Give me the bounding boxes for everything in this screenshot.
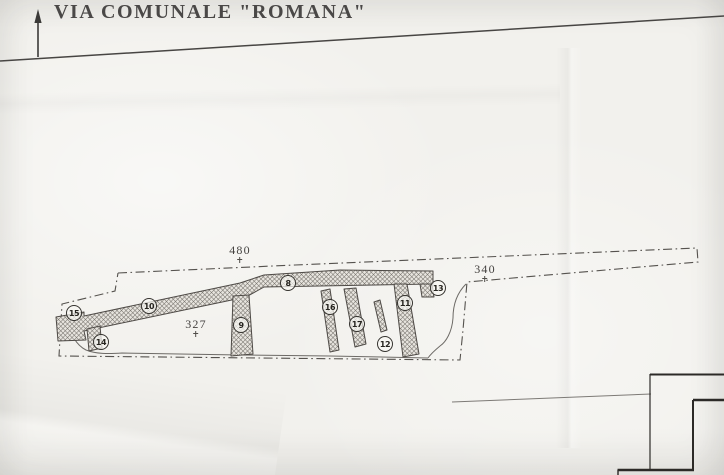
measurement-value: 480 bbox=[229, 245, 251, 256]
site-marker-8: 8 bbox=[280, 275, 296, 291]
site-marker-16: 16 bbox=[322, 299, 338, 315]
measurement-label: 340 bbox=[474, 264, 496, 282]
site-marker-17: 17 bbox=[349, 316, 365, 332]
building-footprint bbox=[618, 374, 724, 475]
survey-tick-icon bbox=[484, 276, 485, 282]
north-arrow-icon bbox=[34, 9, 41, 57]
survey-line bbox=[452, 394, 651, 402]
measurement-label: 327 bbox=[185, 319, 207, 337]
site-marker-12: 12 bbox=[377, 336, 393, 352]
survey-tick-icon bbox=[239, 257, 240, 263]
site-marker-11: 11 bbox=[397, 295, 413, 311]
site-marker-14: 14 bbox=[93, 334, 109, 350]
scanned-site-plan: VIA COMUNALE "ROMANA" bbox=[0, 0, 724, 475]
survey-tick-icon bbox=[195, 331, 196, 337]
site-marker-9: 9 bbox=[233, 317, 249, 333]
site-marker-15: 15 bbox=[66, 305, 82, 321]
site-plan-drawing bbox=[0, 0, 724, 475]
measurement-value: 327 bbox=[185, 319, 207, 330]
site-marker-13: 13 bbox=[430, 280, 446, 296]
measurement-label: 480 bbox=[229, 245, 251, 263]
measurement-value: 340 bbox=[474, 264, 496, 275]
road-edge-line bbox=[0, 16, 724, 61]
site-marker-10: 10 bbox=[141, 298, 157, 314]
wall-12 bbox=[374, 300, 387, 332]
